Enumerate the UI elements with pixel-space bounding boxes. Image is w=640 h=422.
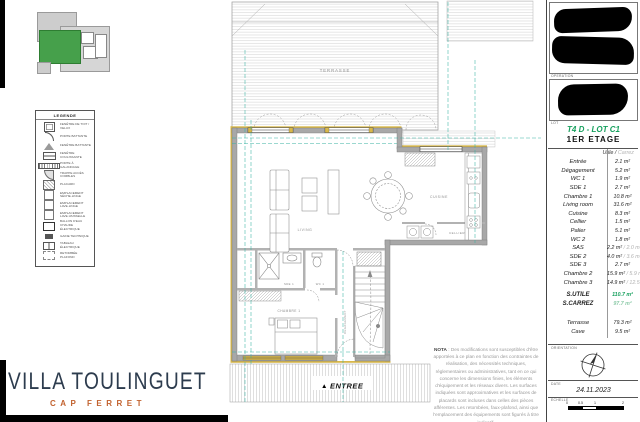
pocket-door-icon	[38, 163, 60, 169]
wc-1: WC 1	[312, 253, 324, 286]
page-edge-bottom	[0, 415, 228, 422]
brand-block: VILLA TOULINGUET CAP FERRET	[8, 368, 218, 408]
swing-door-icon	[38, 132, 60, 141]
dining-table	[364, 172, 413, 221]
legend-label: Trappe accès combles	[60, 172, 92, 180]
room-area: 31.6 m²	[607, 202, 638, 208]
legend-label: Gaine technique	[60, 235, 89, 239]
project-subtitle: CAP FERRET	[50, 399, 218, 408]
page-edge-bottom-left	[0, 360, 6, 422]
lot-label: LOT	[551, 121, 559, 125]
table-row: Palier5.1 m²	[549, 227, 638, 236]
utile-value: 8.3 m²	[615, 211, 630, 217]
highlighted-lot	[39, 30, 81, 64]
scale-bar: 0 0.5 1 2	[558, 401, 632, 415]
table-row: SDE 32.7 m²	[549, 261, 638, 270]
water-heater-icon	[38, 222, 60, 231]
room-area: 2.7 m²	[607, 185, 638, 191]
site-key-plan	[30, 8, 110, 74]
room-label: Chambre 1	[549, 194, 607, 200]
room-outline	[81, 32, 94, 44]
header-utile: Utile /	[603, 150, 617, 156]
legend-item: Gaine technique	[36, 232, 94, 242]
legend-label: Fenêtre coulissante	[60, 152, 92, 160]
utile-value: 14.9 m²	[607, 280, 625, 286]
bedroom-1: CHAMBRE 1	[239, 291, 317, 354]
sliding-window-icon	[38, 152, 60, 160]
total-value: 97.7 m²	[607, 301, 638, 307]
utile-value: 5.1 m²	[615, 228, 630, 234]
utile-value: 2.7 m²	[615, 185, 630, 191]
utile-value: 10.8 m²	[614, 194, 632, 200]
legend-label: Retombée plafond	[60, 252, 92, 260]
nota-text: : Des modifications sont susceptibles d'…	[433, 347, 539, 422]
room-label: SAS	[549, 245, 607, 251]
extra-label: Cave	[549, 329, 607, 335]
room-area: 1.8 m²	[607, 237, 638, 243]
table-row: SAS2.2 m² / 2.0 m²	[549, 244, 638, 253]
utile-value: 31.6 m²	[614, 202, 632, 208]
table-row: Chambre 215.9 m² / 5.9 m²	[549, 270, 638, 279]
table-row: SDE 12.7 m²	[549, 184, 638, 193]
legend-item: Placard	[36, 180, 94, 190]
terrace: TERRASSE	[232, 1, 533, 147]
entrance-deck: ▲ ENTREE	[230, 364, 430, 402]
extra-label: Terrasse	[549, 320, 607, 326]
room-label: Chambre 2	[549, 271, 607, 277]
redacted-logo	[554, 7, 633, 34]
total-label: S.UTILE	[549, 292, 607, 298]
legend-item: Fenêtre de toit / velux	[36, 122, 94, 132]
room-label: Palier	[549, 228, 607, 234]
utile-value: 5.2 m²	[615, 168, 630, 174]
washer-icon	[38, 200, 60, 210]
table-row: WC 11.9 m²	[549, 175, 638, 184]
carrez-value: / 12.5 m²	[626, 280, 640, 286]
utile-value: 15.9 m²	[607, 271, 625, 277]
utile-value: 2.7 m²	[615, 262, 630, 268]
divider	[548, 148, 638, 149]
table-row: Chambre 110.8 m²	[549, 192, 638, 201]
legend-item: Ballon d'eau chaude électrique	[36, 220, 94, 232]
redacted-operation-name	[558, 83, 629, 115]
legend-item: Tableau électrique	[36, 242, 94, 252]
title-block-panel: OPERATION LOT T4 D - LOT C1 1ER ETAGE Ut…	[546, 0, 639, 422]
carrez-value: / 3.6 m²	[624, 254, 640, 260]
table-row: SDE 24.0 m² / 3.6 m²	[549, 253, 638, 262]
room-outline	[95, 34, 107, 58]
legend-label: Emplacement sèche-linge	[60, 192, 92, 200]
room-label: Cuisine	[549, 211, 607, 217]
nota-disclaimer: NOTA : Des modifications sont susceptibl…	[430, 346, 542, 422]
living-label: LIVING	[298, 228, 313, 232]
utile-value: 1.9 m²	[615, 176, 630, 182]
table-row: Cuisine8.3 m²	[549, 210, 638, 219]
shower-room-1: SDE 1	[259, 253, 301, 286]
utile-value: 1.5 m²	[615, 219, 630, 225]
legend-title: LEGENDE	[36, 113, 94, 120]
room-label: Entrée	[549, 159, 607, 165]
roof-window-icon	[38, 122, 60, 132]
legend-label: Placard	[60, 183, 75, 187]
table-row: Dégagement5.2 m²	[549, 167, 638, 176]
utile-value: 2.2 m²	[607, 245, 622, 251]
dryer-icon	[38, 190, 60, 200]
scale-tick: 0.5	[578, 401, 583, 405]
room-area: 1.9 m²	[607, 176, 638, 182]
legend-label: Ballon d'eau chaude électrique	[60, 220, 92, 232]
legend-item: Porte battante	[36, 132, 94, 142]
extra-row: Terrasse79.3 m²	[549, 319, 638, 328]
carrez-value: / 2.0 m²	[624, 245, 640, 251]
divider	[548, 380, 638, 381]
legend-label: Porte à galandage	[60, 162, 92, 170]
utile-value: 1.8 m²	[615, 237, 630, 243]
room-area: 8.3 m²	[607, 211, 638, 217]
electric-panel-icon	[38, 242, 60, 250]
nota-label: NOTA	[434, 347, 447, 352]
roof-shape	[37, 62, 51, 74]
pantry-label: CELLIER	[449, 231, 465, 235]
legend-item: Fenêtre battante	[36, 142, 94, 152]
table-row: Chambre 314.9 m² / 12.5 m²	[549, 278, 638, 287]
legend-label: Fenêtre battante	[60, 144, 91, 148]
wc-label: WC 1	[316, 282, 325, 286]
kitchen-label: CUISINE	[430, 195, 448, 199]
room-area: 14.9 m² / 12.5 m²	[607, 280, 640, 286]
entrance-arrow: ▲	[321, 383, 327, 390]
operation-label: OPERATION	[551, 74, 573, 78]
room-label: SDE 2	[549, 254, 607, 260]
extra-value: 79.3 m²	[607, 320, 638, 326]
date-label: DATE	[551, 382, 561, 386]
room-label: Living room	[549, 202, 607, 208]
legend-item: Emplacement sèche-linge	[36, 190, 94, 200]
compass-icon	[578, 351, 608, 379]
ceiling-drop-icon	[38, 251, 60, 260]
total-row: S.UTILE110.7 m²	[549, 290, 638, 300]
terrace-label: TERRASSE	[320, 68, 351, 73]
areas-table: Entrée2.1 m² Dégagement5.2 m² WC 11.9 m²…	[549, 158, 638, 336]
legend-label: Fenêtre de toit / velux	[60, 123, 92, 131]
scale-bar-segments	[568, 406, 624, 410]
technical-duct-icon	[38, 234, 60, 239]
legend-label: Porte battante	[60, 135, 87, 139]
room-area: 1.5 m²	[607, 219, 638, 225]
lot-title: T4 D - LOT C1	[547, 125, 640, 134]
scale-tick: 1	[594, 401, 596, 405]
legend-panel: LEGENDE Fenêtre de toit / velux Porte ba…	[35, 110, 95, 267]
operation-box	[549, 79, 638, 121]
table-row: Cellier1.5 m²	[549, 218, 638, 227]
utile-value: 4.0 m²	[607, 254, 622, 260]
logos-box	[549, 2, 638, 74]
legend-item: Trappe accès combles	[36, 170, 94, 180]
room-area: 2.1 m²	[607, 159, 638, 165]
legend-item: Fenêtre coulissante	[36, 151, 94, 161]
room-label: Chambre 3	[549, 280, 607, 286]
hatch-access-icon	[38, 170, 60, 180]
utile-value: 2.1 m²	[615, 159, 630, 165]
corridor: DEGAGEMENT	[343, 310, 347, 334]
scale-tick: 2	[622, 401, 624, 405]
legend-item: Porte à galandage	[36, 161, 94, 171]
living-room: LIVING	[270, 170, 339, 252]
extra-value: 9.5 m²	[607, 329, 638, 335]
room-area: 15.9 m² / 5.9 m²	[607, 271, 640, 277]
room-label: SDE 3	[549, 262, 607, 268]
room-area: 5.2 m²	[607, 168, 638, 174]
table-row: Living room31.6 m²	[549, 201, 638, 210]
project-title: VILLA TOULINGUET	[8, 368, 176, 396]
corridor-label: DEGAGEMENT	[343, 310, 347, 334]
extra-row: Cave9.5 m²	[549, 328, 638, 337]
legend-label: Emplacement lave-vaisselle	[60, 212, 92, 220]
room-label: SDE 1	[549, 185, 607, 191]
redacted-logo	[552, 36, 635, 65]
header-carrez: Carrez	[618, 150, 634, 156]
table-row: Entrée2.1 m²	[549, 158, 638, 167]
room-area: 5.1 m²	[607, 228, 638, 234]
legend-label: Tableau électrique	[60, 242, 92, 250]
floor-title: 1ER ETAGE	[547, 135, 640, 144]
bedroom-label: CHAMBRE 1	[277, 309, 300, 313]
scale-tick: 0	[566, 401, 568, 405]
room-area: 2.2 m² / 2.0 m²	[607, 245, 640, 251]
orientation-label: ORIENTATION	[551, 346, 577, 350]
room-label: Cellier	[549, 219, 607, 225]
total-value: 110.7 m²	[607, 292, 638, 298]
legend-item: Emplacement lave-linge	[36, 200, 94, 210]
room-area: 4.0 m² / 3.6 m²	[607, 254, 640, 260]
shower-room-label: SDE 1	[284, 282, 294, 286]
legend-item: Retombée plafond	[36, 251, 94, 261]
carrez-value: / 5.9 m²	[626, 271, 640, 277]
room-area: 10.8 m²	[607, 194, 638, 200]
page-edge-top-left	[0, 0, 5, 88]
entrance-label: ENTREE	[330, 382, 364, 391]
casement-window-icon	[38, 143, 60, 150]
pantry: CELLIER	[407, 226, 465, 238]
room-label: Dégagement	[549, 168, 607, 174]
floor-plan-sheet: { "brand": { "title": "VILLA TOULINGUET"…	[0, 0, 640, 422]
room-area: 2.7 m²	[607, 262, 638, 268]
stairs	[355, 252, 385, 358]
room-label: WC 2	[549, 237, 607, 243]
closet-icon	[38, 180, 60, 190]
total-row: S.CARREZ97.7 m²	[549, 299, 638, 309]
legend-label: Emplacement lave-linge	[60, 202, 92, 210]
dishwasher-icon	[38, 210, 60, 220]
total-label: S.CARREZ	[549, 301, 607, 307]
room-label: WC 1	[549, 176, 607, 182]
date-value: 24.11.2023	[547, 387, 640, 394]
table-row: WC 21.8 m²	[549, 235, 638, 244]
